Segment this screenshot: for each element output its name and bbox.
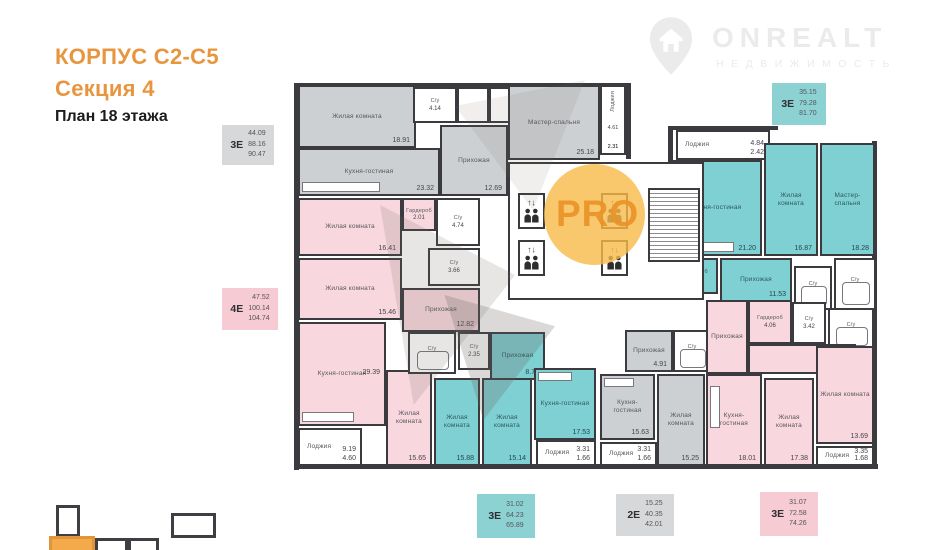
room-bathroom: С/у4.94 [834, 258, 876, 310]
kitchen-counter [710, 386, 720, 428]
bathtub [842, 282, 871, 306]
bathtub [680, 349, 706, 368]
room-wardrobe: Гардероб4.06 [748, 300, 792, 344]
kitchen-counter [302, 412, 354, 422]
apartment-badge-3e-bottom-left: 3Е 31.0264.2365.89 [477, 494, 535, 538]
footprint-block [95, 538, 128, 550]
room-living: Жилая комната15.88 [434, 378, 480, 466]
room-kitchen-living: Кухня-гостиная29.39 [298, 322, 386, 426]
kitchen-counter [302, 182, 380, 192]
pro-watermark-label: PRO [556, 193, 639, 235]
logo-tagline: НЕДВИЖИМОСТЬ [716, 58, 897, 70]
floor-plan-page: КОРПУС С2-С5 Секция 4 План 18 этажа ONRE… [0, 0, 941, 550]
footprint-block [56, 505, 80, 537]
room-kitchen-living: Кухня-гостиная15.63 [600, 374, 655, 440]
footprint-block [128, 538, 159, 550]
logo-pin-house-icon [648, 14, 694, 78]
building-title: КОРПУС С2-С5 [55, 44, 219, 70]
footprint-block [171, 513, 216, 538]
kitchen-counter [604, 378, 634, 387]
wall [668, 126, 673, 164]
room-loggia: Лоджия 9.19 4.60 [298, 428, 362, 466]
apartment-badge-2e-bottom-center: 2Е 15.2540.3542.01 [616, 494, 674, 536]
room-hallway: Прихожая4.91 [625, 330, 673, 372]
room-master-bedroom: Мастер-спальня18.28 [820, 143, 875, 256]
elevator-icon: ↑↓ [518, 240, 545, 276]
room-hallway: Прихожая [706, 300, 748, 374]
room-kitchen-living: Кухня-гостиная17.53 [534, 368, 596, 440]
wall [626, 83, 631, 159]
footprint-current-section [49, 536, 95, 550]
floor-title: План 18 этажа [55, 108, 168, 126]
apartment-badge-3e-top-left: 3Е 44.0988.1690.47 [222, 125, 274, 165]
room-loggia: Лоджия 3.31 1.66 [600, 442, 657, 466]
room-loggia: Лоджия 4.84 2.42 [676, 130, 770, 160]
room-living: Жилая комната15.25 [657, 374, 705, 466]
staircase [648, 188, 700, 262]
room-bathroom: С/у3.42 [792, 302, 826, 344]
apartment-badge-4e-mid-left: 4Е 47.52100.14104.74 [222, 288, 278, 330]
room-living: Жилая комната18.91 [298, 85, 416, 148]
svg-text:↑↓: ↑↓ [527, 244, 536, 254]
section-title: Секция 4 [55, 76, 155, 102]
room-loggia: Лоджия 4.61 2.31 [600, 85, 626, 155]
room-living: Жилая комната15.46 [298, 258, 402, 320]
room-bathroom: С/у4.14 [413, 87, 457, 123]
room-loggia: Лоджия 3.35 1.68 [816, 446, 874, 466]
room-kitchen-living: Кухня-гостиная23.32 [298, 148, 440, 196]
room-hallway: Прихожая11.53 [720, 258, 792, 302]
room-loggia: Лоджия 3.31 1.66 [536, 440, 596, 466]
apartment-badge-3e-top-right: 3Е 35.1579.2881.70 [772, 83, 826, 125]
kitchen-counter [538, 372, 572, 381]
room-living: Жилая комната13.69 [816, 346, 874, 444]
room-living: Жилая комната17.38 [764, 378, 814, 466]
apartment-badge-3e-bottom-right: 3Е 31.0772.5874.26 [760, 492, 818, 536]
room-kitchen-living: Кухня-гостиная18.01 [706, 374, 762, 466]
room-living: Жилая комната16.87 [764, 143, 818, 256]
logo-brand: ONREALT [712, 22, 887, 54]
